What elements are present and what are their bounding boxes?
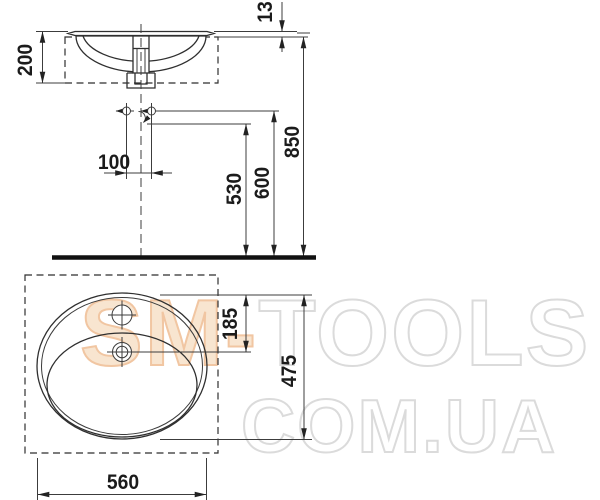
dim-label-drain-offset: 185 (219, 308, 243, 340)
dim-label-rim-above-counter: 13 (254, 1, 278, 22)
waste-outlet-symbol (139, 111, 146, 122)
dim-label-overall-depth: 475 (278, 355, 302, 387)
drawing-sheet: SM-TOOLS COM.UA (0, 0, 600, 500)
dim-label-counter-height: 850 (281, 126, 305, 158)
technical-drawing (0, 0, 600, 500)
dim-label-overall-width: 560 (107, 471, 139, 495)
dim-label-bowl-depth: 200 (14, 44, 38, 76)
dim-label-supply-height: 600 (251, 167, 275, 199)
water-supply-symbol-right (141, 103, 159, 119)
dim-label-drain-height: 530 (223, 173, 247, 205)
tap-hole-icon (108, 301, 136, 330)
plan-view-drawing (25, 275, 312, 500)
dim-label-supply-spacing: 100 (98, 151, 130, 175)
drain-hole-icon (107, 337, 251, 367)
side-view-drawing (36, 2, 316, 260)
water-supply-symbol-left (116, 103, 134, 119)
